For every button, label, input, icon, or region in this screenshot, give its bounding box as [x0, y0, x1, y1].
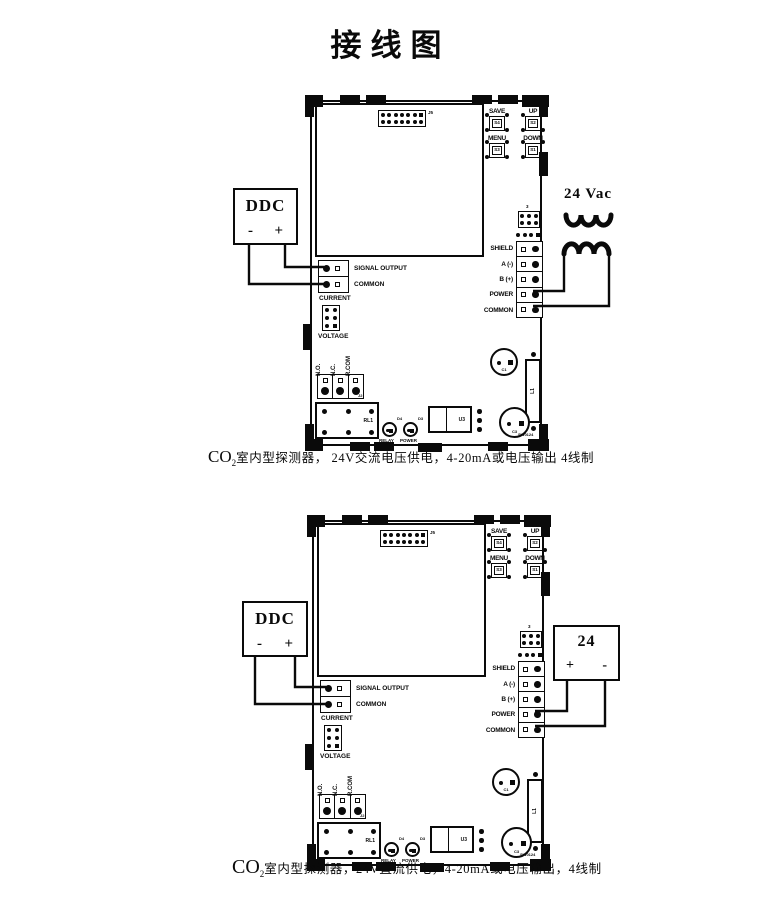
pin-header — [514, 230, 542, 239]
relay-rl1: RL1 — [315, 402, 379, 439]
relay-block-label: J2 — [360, 814, 364, 818]
page-title: 接线图 — [0, 20, 781, 65]
pcb-board: J5 SAVE S4 UP S2 MENU S3 DOWN S1 3 — [312, 520, 544, 866]
output-terminal-block — [318, 260, 349, 293]
ddc-box: DDC - + — [233, 188, 298, 245]
j5-connector — [380, 530, 428, 547]
relay-led-code: D4 — [399, 837, 404, 841]
comm-terminal-block — [518, 661, 545, 738]
jumper-j3-label: 3 — [528, 625, 531, 630]
save-button: SAVE S4 — [485, 108, 509, 131]
relay-terminal-block — [317, 374, 364, 399]
output-terminal-labels: SIGNAL OUTPUT COMMON — [354, 260, 407, 293]
ddc-label: DDC — [244, 609, 306, 629]
relay-terminal-block — [319, 794, 366, 819]
output-terminal-labels: SIGNAL OUTPUT COMMON — [356, 680, 409, 713]
down-button: DOWN S1 — [523, 555, 547, 578]
current-label: CURRENT — [319, 296, 351, 303]
relay-led-label: RELAY — [379, 439, 394, 444]
ic-u3: U3 — [428, 406, 472, 433]
j5-connector-label: J5 — [428, 111, 433, 116]
current-label: CURRENT — [321, 716, 353, 723]
power-led-code: D3 — [418, 417, 423, 421]
dc-supply-box: 24 + - — [553, 625, 620, 681]
component-c1: C1 — [492, 768, 520, 796]
voltage-label: VOLTAGE — [320, 754, 350, 761]
power-led-label: POWER — [400, 439, 417, 444]
diagram-dc-caption: CO2室内型探测器，24V直流供电，4-20mA或电压输出，4线制 — [232, 856, 602, 879]
menu-button: MENU S3 — [485, 135, 509, 158]
menu-button: MENU S3 — [487, 555, 511, 578]
j5-connector-label: J5 — [430, 531, 435, 536]
ddc-plus-terminal: + — [284, 636, 293, 653]
dc-supply-label: 24 — [555, 633, 618, 651]
comm-terminal-labels: SHIELD A (-) B (+) POWER COMMON — [470, 241, 513, 318]
save-button: SAVE S4 — [487, 528, 511, 551]
comm-terminal-labels: SHIELD A (-) B (+) POWER COMMON — [472, 661, 515, 738]
power-led — [405, 842, 420, 857]
component-c1: C1 — [490, 348, 518, 376]
power-led — [403, 422, 418, 437]
output-terminal-block — [320, 680, 351, 713]
comm-terminal-block — [516, 241, 543, 318]
relay-led — [384, 842, 399, 857]
dc-plus-terminal: + — [566, 658, 574, 674]
wire-common-to-transformer — [533, 254, 609, 306]
jumper-j3-label: 3 — [526, 205, 529, 210]
relay-block-label: J2 — [358, 394, 362, 398]
dc-minus-terminal: - — [602, 658, 607, 674]
ac-supply-label: 24 Vac — [548, 186, 628, 203]
ic-u3: U3 — [430, 826, 474, 853]
mode-jumper-block — [322, 305, 340, 331]
ddc-plus-terminal: + — [274, 223, 283, 240]
pin-header — [516, 650, 544, 659]
mode-jumper-block — [324, 725, 342, 751]
comm-jumper-block — [518, 211, 540, 228]
diagram-ac-caption: CO2室内型探测器， 24V交流电压供电，4-20mA或电压输出 4线制 — [208, 447, 594, 468]
ddc-minus-terminal: - — [257, 636, 262, 653]
up-button: UP S2 — [523, 528, 547, 551]
relay-led — [382, 422, 397, 437]
up-button: UP S2 — [521, 108, 545, 131]
relay-rl1: RL1 — [317, 822, 381, 859]
transformer-primary-coil — [566, 215, 611, 225]
j5-connector — [378, 110, 426, 127]
rcom-label: R.COM — [348, 776, 354, 796]
voltage-label: VOLTAGE — [318, 334, 348, 341]
ddc-minus-terminal: - — [248, 223, 253, 240]
wiring-diagram-page: 接线图 DDC - + 24 Vac — [0, 0, 781, 902]
ddc-label: DDC — [235, 196, 296, 216]
corner-code-label: SW0124 — [518, 433, 533, 437]
comm-jumper-block — [520, 631, 542, 648]
down-button: DOWN S1 — [521, 135, 545, 158]
pcb-board: J5 SAVE S4 UP S2 MENU S3 DOWN S1 3 — [310, 100, 542, 446]
ddc-box: DDC - + — [242, 601, 308, 657]
relay-led-code: D4 — [397, 417, 402, 421]
power-led-code: D3 — [420, 837, 425, 841]
transformer-symbol — [564, 215, 611, 254]
transformer-secondary-coil — [564, 244, 609, 254]
wire-dc-minus-to-common — [535, 681, 605, 726]
rcom-label: R.COM — [346, 356, 352, 376]
